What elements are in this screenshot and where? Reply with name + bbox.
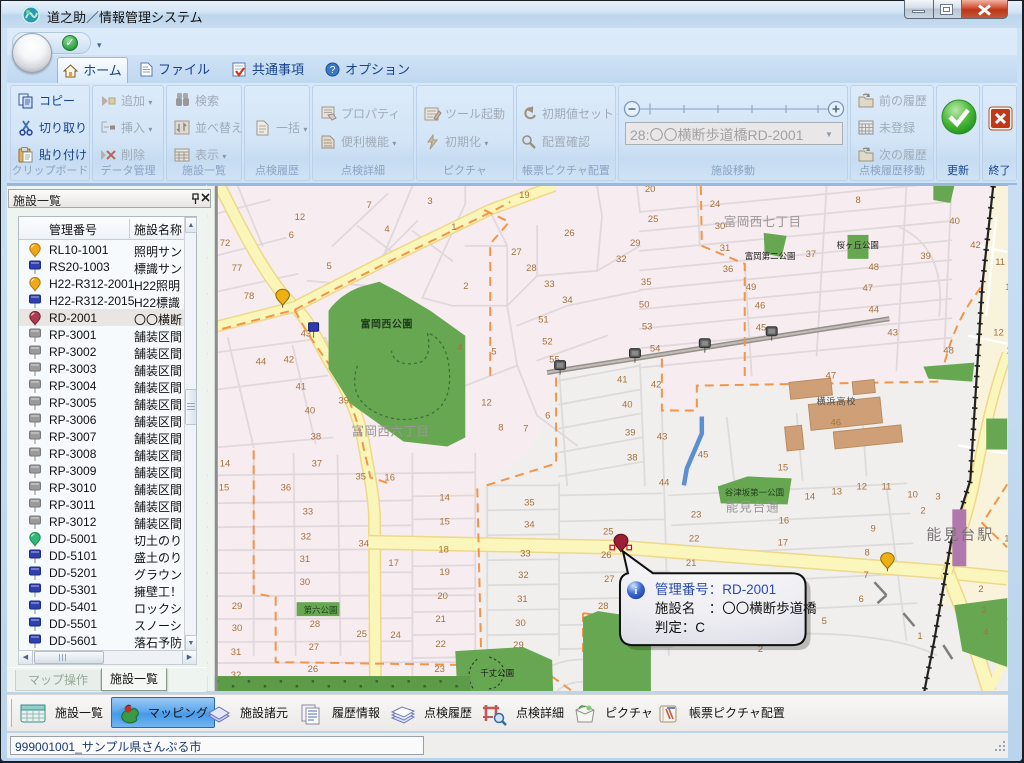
svg-text:26: 26 — [308, 664, 319, 675]
svg-text:富岡西公園: 富岡西公園 — [360, 318, 412, 331]
svg-text:47: 47 — [862, 283, 873, 294]
svg-text:47: 47 — [826, 371, 837, 382]
svg-text:25: 25 — [356, 629, 367, 640]
svg-text:9: 9 — [870, 523, 875, 534]
svg-text:19: 19 — [519, 190, 530, 201]
svg-text:33: 33 — [303, 506, 314, 517]
svg-text:45: 45 — [756, 323, 767, 334]
svg-text:51: 51 — [538, 315, 549, 326]
svg-text:44: 44 — [659, 477, 670, 488]
svg-text:15: 15 — [778, 462, 789, 473]
svg-text:8: 8 — [856, 195, 861, 206]
svg-text:16: 16 — [779, 515, 790, 526]
svg-text:2: 2 — [920, 505, 925, 516]
svg-text:2: 2 — [978, 584, 983, 595]
svg-text:能見台駅: 能見台駅 — [926, 526, 994, 543]
svg-text:31: 31 — [300, 554, 311, 565]
svg-text:管理番号：RD-2001: 管理番号：RD-2001 — [655, 582, 776, 597]
svg-text:1: 1 — [917, 631, 922, 642]
svg-text:第六公園: 第六公園 — [304, 605, 338, 615]
svg-text:i: i — [634, 585, 637, 597]
svg-text:44: 44 — [868, 305, 879, 316]
svg-text:8: 8 — [498, 423, 503, 434]
svg-text:判定：C: 判定：C — [655, 620, 705, 635]
svg-text:4: 4 — [457, 343, 462, 354]
svg-text:46: 46 — [755, 301, 766, 312]
svg-text:45: 45 — [698, 449, 709, 460]
svg-text:46: 46 — [831, 418, 842, 429]
svg-text:33: 33 — [544, 279, 555, 290]
svg-text:14: 14 — [1004, 533, 1008, 544]
svg-text:40: 40 — [949, 216, 960, 227]
svg-text:17: 17 — [388, 558, 399, 569]
svg-text:24: 24 — [710, 199, 721, 210]
svg-text:27: 27 — [604, 574, 615, 585]
svg-text:36: 36 — [281, 482, 292, 493]
svg-text:14: 14 — [220, 458, 231, 469]
svg-text:31: 31 — [517, 594, 528, 605]
svg-text:42: 42 — [284, 355, 295, 366]
svg-text:13: 13 — [1006, 346, 1008, 357]
svg-text:48: 48 — [868, 262, 879, 273]
svg-text:22: 22 — [689, 533, 700, 544]
svg-text:52: 52 — [542, 337, 553, 348]
svg-text:富岡西六丁目: 富岡西六丁目 — [352, 424, 430, 439]
svg-text:桜ヶ丘公園: 桜ヶ丘公園 — [837, 240, 879, 250]
svg-text:17: 17 — [778, 537, 789, 548]
svg-text:29: 29 — [513, 640, 524, 651]
svg-text:能見台通: 能見台通 — [726, 499, 780, 514]
svg-text:35: 35 — [524, 497, 535, 508]
svg-text:33: 33 — [520, 548, 531, 559]
svg-text:24: 24 — [390, 630, 401, 641]
svg-text:14: 14 — [439, 492, 450, 503]
svg-text:?: ? — [330, 65, 336, 76]
svg-text:30: 30 — [515, 618, 526, 629]
svg-text:49: 49 — [746, 282, 757, 293]
svg-text:10: 10 — [1005, 282, 1008, 293]
svg-text:78: 78 — [244, 291, 255, 302]
svg-text:25: 25 — [603, 526, 614, 537]
svg-text:16: 16 — [384, 472, 395, 483]
svg-text:54: 54 — [650, 344, 661, 355]
svg-text:11: 11 — [995, 257, 1005, 268]
svg-text:39: 39 — [339, 396, 350, 407]
svg-text:富岡西七丁目: 富岡西七丁目 — [724, 214, 802, 229]
svg-text:34: 34 — [562, 295, 573, 306]
svg-text:19: 19 — [439, 567, 450, 578]
svg-text:12: 12 — [993, 328, 1004, 339]
svg-text:3: 3 — [427, 196, 432, 207]
svg-text:6: 6 — [289, 230, 294, 241]
svg-text:23: 23 — [434, 664, 445, 675]
svg-text:26: 26 — [564, 228, 575, 239]
svg-text:38: 38 — [627, 452, 638, 463]
svg-text:31: 31 — [720, 243, 731, 254]
svg-text:39: 39 — [625, 428, 636, 439]
svg-text:32: 32 — [518, 570, 529, 581]
svg-text:44: 44 — [256, 357, 267, 368]
svg-text:23: 23 — [691, 509, 702, 520]
svg-text:14: 14 — [805, 491, 816, 502]
svg-text:21: 21 — [435, 614, 446, 625]
svg-text:3: 3 — [935, 491, 940, 502]
svg-text:20: 20 — [645, 185, 656, 195]
svg-text:32: 32 — [616, 254, 627, 265]
svg-text:28: 28 — [310, 619, 321, 630]
svg-text:43: 43 — [887, 328, 898, 339]
svg-text:5: 5 — [822, 616, 827, 627]
svg-text:11: 11 — [881, 481, 891, 492]
svg-text:30: 30 — [715, 221, 726, 232]
svg-text:40: 40 — [305, 406, 316, 417]
svg-text:千丈公園: 千丈公園 — [480, 668, 514, 678]
svg-text:38: 38 — [311, 431, 322, 442]
svg-text:35: 35 — [355, 471, 366, 482]
svg-text:5: 5 — [327, 261, 332, 272]
svg-text:2: 2 — [463, 281, 468, 292]
svg-text:1: 1 — [451, 222, 456, 233]
svg-text:4: 4 — [384, 224, 389, 235]
svg-text:7: 7 — [523, 424, 528, 435]
svg-text:13: 13 — [832, 486, 843, 497]
svg-text:25: 25 — [648, 214, 659, 225]
svg-text:15: 15 — [219, 482, 230, 493]
svg-text:21: 21 — [686, 558, 697, 569]
svg-text:37: 37 — [312, 458, 323, 469]
svg-text:27: 27 — [511, 247, 522, 258]
svg-text:34: 34 — [358, 538, 369, 549]
svg-text:41: 41 — [296, 382, 307, 393]
svg-text:6: 6 — [859, 594, 864, 605]
svg-text:48: 48 — [943, 346, 954, 357]
svg-text:谷津坂第一公園: 谷津坂第一公園 — [725, 487, 784, 497]
svg-text:施設名 ：〇〇横断歩道橋: 施設名 ：〇〇横断歩道橋 — [655, 601, 817, 616]
svg-text:39: 39 — [920, 251, 931, 262]
svg-text:40: 40 — [622, 400, 633, 411]
svg-text:41: 41 — [617, 375, 628, 386]
svg-text:30: 30 — [232, 623, 243, 634]
svg-text:43: 43 — [657, 431, 668, 442]
svg-text:34: 34 — [524, 519, 535, 530]
svg-text:26: 26 — [601, 550, 612, 561]
svg-text:32: 32 — [301, 531, 312, 542]
svg-text:28: 28 — [526, 263, 537, 274]
svg-text:53: 53 — [642, 322, 653, 333]
svg-text:横浜高校: 横浜高校 — [817, 396, 857, 407]
svg-text:31: 31 — [231, 647, 242, 658]
svg-text:42: 42 — [651, 380, 662, 391]
svg-text:7: 7 — [366, 200, 371, 211]
svg-text:12: 12 — [857, 481, 868, 492]
svg-text:36: 36 — [723, 264, 734, 275]
svg-text:20: 20 — [437, 591, 448, 602]
svg-text:30: 30 — [300, 577, 311, 588]
svg-text:29: 29 — [630, 238, 641, 249]
svg-text:29: 29 — [232, 601, 243, 612]
svg-text:12: 12 — [295, 212, 306, 223]
svg-text:50: 50 — [639, 300, 650, 311]
svg-text:77: 77 — [232, 263, 243, 274]
svg-text:6: 6 — [545, 411, 550, 422]
svg-text:4: 4 — [983, 627, 988, 638]
svg-text:8: 8 — [864, 547, 869, 558]
svg-text:富岡第二公園: 富岡第二公園 — [745, 251, 796, 261]
svg-text:22: 22 — [435, 639, 446, 650]
svg-text:72: 72 — [220, 238, 231, 249]
svg-text:28: 28 — [598, 601, 609, 612]
svg-text:37: 37 — [806, 249, 817, 260]
svg-text:7: 7 — [863, 570, 868, 581]
svg-text:5: 5 — [491, 347, 496, 358]
svg-text:27: 27 — [309, 642, 320, 653]
svg-text:15: 15 — [439, 516, 450, 527]
svg-text:10: 10 — [907, 489, 918, 500]
svg-text:12: 12 — [481, 398, 492, 409]
svg-text:3: 3 — [981, 605, 986, 616]
svg-text:18: 18 — [438, 544, 449, 555]
svg-text:35: 35 — [641, 277, 652, 288]
svg-text:32: 32 — [231, 670, 242, 681]
svg-text:42: 42 — [970, 240, 981, 251]
